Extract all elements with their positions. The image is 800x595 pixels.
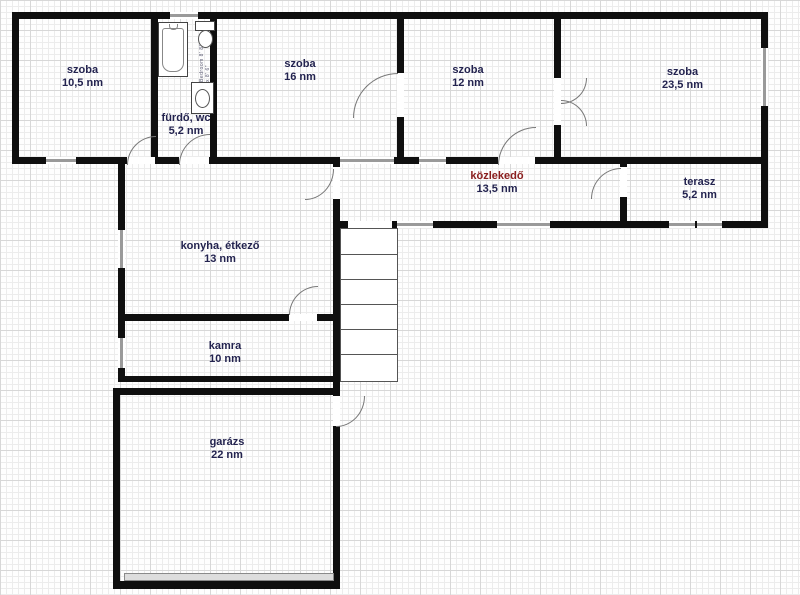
door-opening <box>289 314 317 321</box>
room-name: konyha, étkező <box>155 240 285 253</box>
window <box>118 338 125 368</box>
room-area: 10 nm <box>175 353 275 366</box>
wall <box>12 12 768 19</box>
window <box>118 230 125 268</box>
room-label-szoba-12: szoba 12 nm <box>418 64 518 90</box>
floor-plan: Bedroom 8' 8" x 8' 6" szoba 10,5 nm fürd… <box>0 0 800 595</box>
door-arc <box>498 127 536 165</box>
bathroom-fixture-caption: Bedroom 8' 8" x 8' 6" <box>199 44 209 82</box>
window <box>170 12 198 19</box>
door-arc <box>353 73 398 118</box>
door-opening <box>620 167 627 197</box>
room-name: szoba <box>630 66 735 79</box>
door-opening <box>348 221 392 228</box>
room-area: 12 nm <box>418 77 518 90</box>
room-name: terasz <box>652 176 747 189</box>
door-arc <box>179 134 210 165</box>
room-area: 22 nm <box>177 449 277 462</box>
door-arc <box>591 168 621 199</box>
bathtub-icon <box>158 22 188 77</box>
window <box>419 157 446 164</box>
stair-step <box>341 304 397 305</box>
window <box>497 221 550 228</box>
room-area: 5,2 nm <box>148 125 224 138</box>
room-label-szoba-16: szoba 16 nm <box>250 58 350 84</box>
room-name: kamra <box>175 340 275 353</box>
room-name: garázs <box>177 436 277 449</box>
door-arc <box>305 169 334 200</box>
door-opening <box>333 167 340 199</box>
sink-basin <box>195 89 210 108</box>
window <box>340 157 394 164</box>
door-arc <box>127 136 156 165</box>
wall <box>118 376 340 382</box>
room-label-furdo-wc: fürdő, wc 5,2 nm <box>148 112 224 138</box>
room-label-konyha-etkezo: konyha, étkező 13 nm <box>155 240 285 266</box>
staircase <box>340 228 398 382</box>
room-label-terasz: terasz 5,2 nm <box>652 176 747 202</box>
room-area: 13 nm <box>155 253 285 266</box>
door-arc <box>561 100 587 126</box>
wall <box>113 388 340 395</box>
garage-door <box>124 573 334 581</box>
door-arc <box>336 396 365 427</box>
room-label-kamra: kamra 10 nm <box>175 340 275 366</box>
room-area: 5,2 nm <box>652 189 747 202</box>
window <box>397 221 433 228</box>
room-label-szoba-235: szoba 23,5 nm <box>630 66 735 92</box>
window <box>697 221 722 228</box>
window <box>761 48 768 106</box>
room-name: szoba <box>250 58 350 71</box>
bathtub-basin <box>162 28 184 72</box>
room-name: közlekedő <box>438 170 556 183</box>
room-area: 13,5 nm <box>438 183 556 196</box>
stair-step <box>341 354 397 355</box>
stair-step <box>341 254 397 255</box>
wall <box>761 12 768 228</box>
stair-step <box>341 329 397 330</box>
room-name: szoba <box>418 64 518 77</box>
window <box>669 221 695 228</box>
room-name: szoba <box>25 64 140 77</box>
room-label-szoba-105: szoba 10,5 nm <box>25 64 140 90</box>
room-name: fürdő, wc <box>148 112 224 125</box>
room-area: 23,5 nm <box>630 79 735 92</box>
room-area: 10,5 nm <box>25 77 140 90</box>
door-arc <box>289 286 318 315</box>
window <box>46 157 76 164</box>
door-opening <box>554 78 561 125</box>
stair-step <box>341 279 397 280</box>
room-label-kozlekedo: közlekedő 13,5 nm <box>438 170 556 196</box>
wall <box>113 581 340 589</box>
wall <box>12 12 19 164</box>
room-label-garazs: garázs 22 nm <box>177 436 277 462</box>
door-opening <box>397 73 404 117</box>
wall <box>561 157 768 164</box>
sink-icon <box>191 82 214 114</box>
wall <box>113 388 120 589</box>
room-area: 16 nm <box>250 71 350 84</box>
